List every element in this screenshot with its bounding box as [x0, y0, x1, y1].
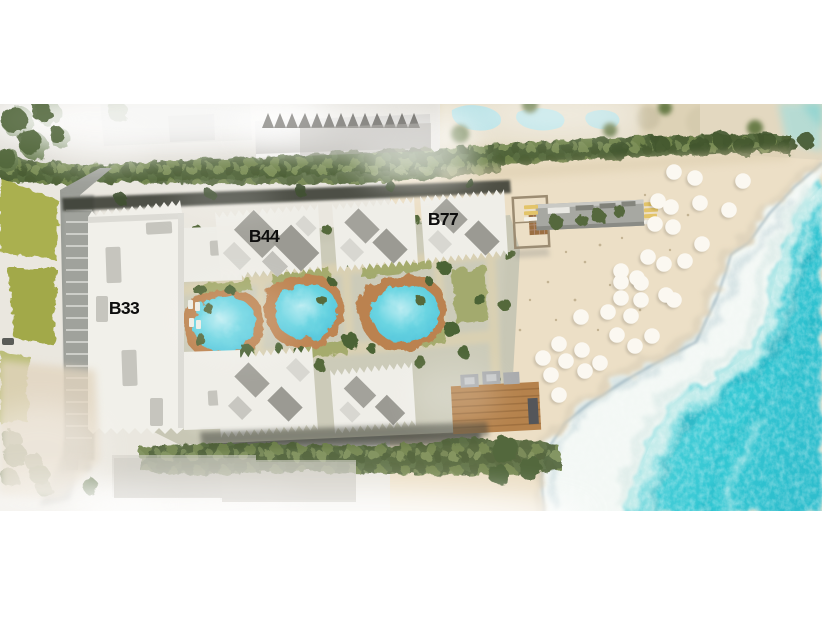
- svg-text:B44: B44: [249, 226, 280, 246]
- svg-text:B33: B33: [109, 298, 140, 318]
- svg-text:B77: B77: [428, 209, 458, 229]
